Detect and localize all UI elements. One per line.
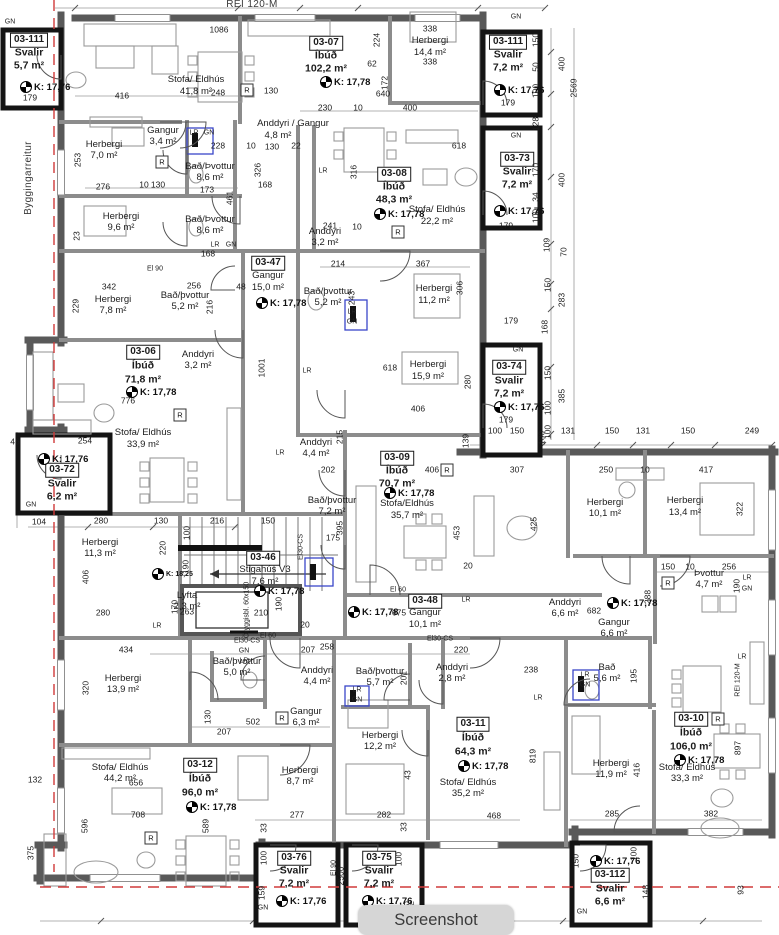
floor-plan-page: { "overlay": { "label": "Screenshot" }, … — [0, 0, 779, 932]
floor-plan-drawing — [0, 0, 779, 932]
exterior-walls — [28, 15, 775, 881]
stair-tread-bar — [178, 545, 262, 551]
dimension-lines — [17, 8, 772, 921]
windows — [27, 15, 776, 882]
door-swings — [37, 55, 690, 871]
boundary-lines — [40, 0, 779, 887]
screenshot-thumbnail[interactable]: Screenshot — [358, 905, 514, 935]
elevator — [182, 586, 300, 634]
floor-plan: 03-11103-0703-11103-7303-0803-4703-0603-… — [0, 0, 779, 932]
balcony-walls — [3, 30, 650, 925]
